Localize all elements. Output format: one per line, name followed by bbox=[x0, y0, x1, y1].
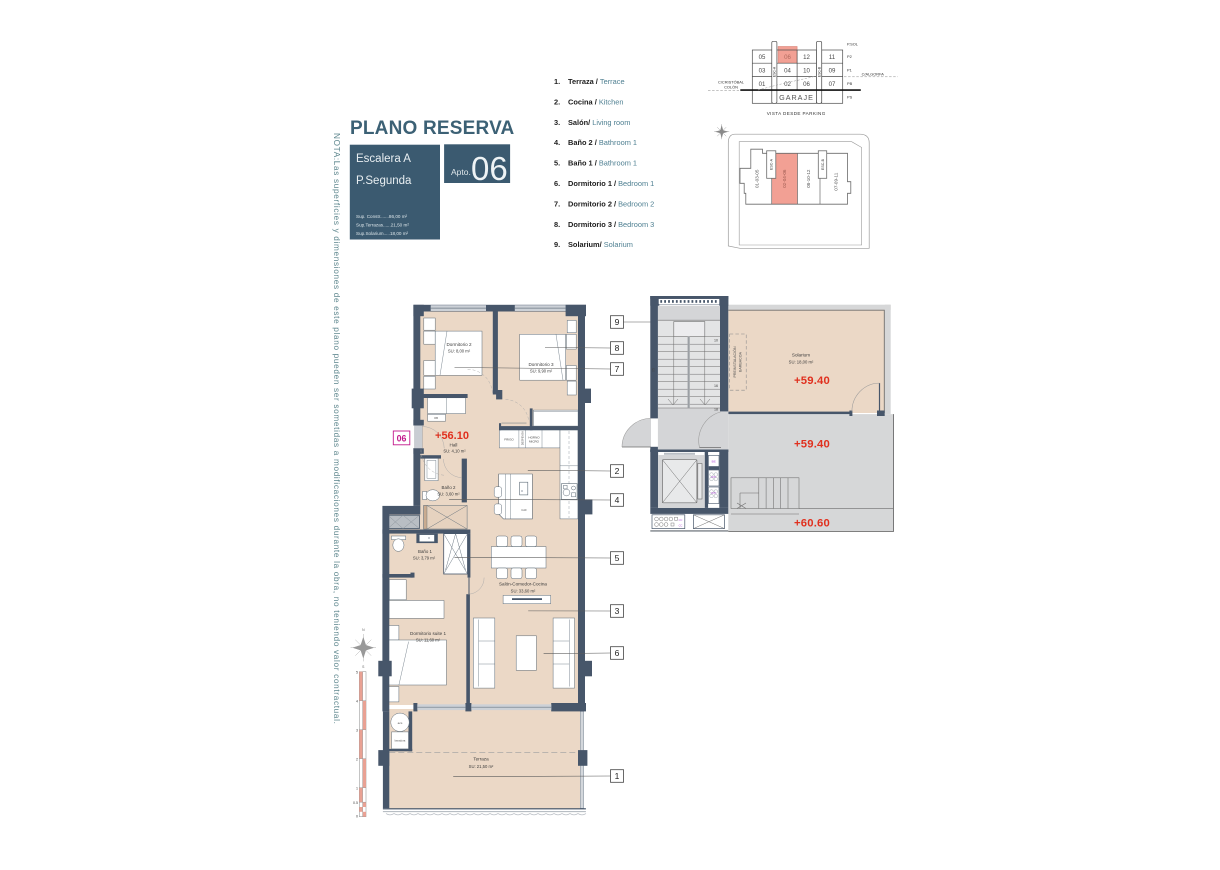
svg-text:02-04-06: 02-04-06 bbox=[782, 169, 787, 188]
svg-text:ESC-B: ESC-B bbox=[817, 66, 821, 77]
svg-text:11: 11 bbox=[829, 54, 836, 61]
svg-text:06: 06 bbox=[471, 150, 508, 187]
svg-text:Terraza: Terraza bbox=[473, 757, 489, 762]
svg-text:1: 1 bbox=[356, 787, 358, 791]
svg-text:CC: CC bbox=[679, 518, 683, 522]
svg-text:5: 5 bbox=[615, 553, 620, 563]
svg-text:01-03-05: 01-03-05 bbox=[755, 169, 760, 188]
svg-text:01: 01 bbox=[759, 81, 766, 88]
svg-text:8: 8 bbox=[615, 343, 620, 353]
svg-text:Escalera A: Escalera A bbox=[356, 153, 411, 165]
svg-text:18: 18 bbox=[714, 408, 718, 412]
svg-text:CC: CC bbox=[679, 524, 683, 528]
svg-text:P.Segunda: P.Segunda bbox=[356, 175, 412, 187]
svg-text:07-09-11: 07-09-11 bbox=[833, 172, 838, 190]
svg-text:12: 12 bbox=[803, 54, 810, 61]
svg-text:Baño 2: Baño 2 bbox=[442, 485, 456, 490]
svg-text:06: 06 bbox=[784, 54, 791, 61]
svg-text:FRIGO: FRIGO bbox=[504, 438, 514, 442]
svg-text:PB: PB bbox=[847, 81, 853, 86]
svg-text:MICRO: MICRO bbox=[529, 440, 540, 444]
svg-text:C/ALGORFA: C/ALGORFA bbox=[862, 71, 885, 76]
svg-text:06: 06 bbox=[803, 81, 810, 88]
svg-text:SU: 18,00 m²: SU: 18,00 m² bbox=[789, 360, 814, 365]
svg-text:Dormitorio 2: Dormitorio 2 bbox=[446, 342, 471, 347]
svg-text:+59.40: +59.40 bbox=[794, 438, 830, 450]
svg-text:10: 10 bbox=[803, 68, 810, 75]
svg-text:8.Dormitorio 3 / Bedroom 3: 8.Dormitorio 3 / Bedroom 3 bbox=[554, 220, 654, 229]
svg-text:16: 16 bbox=[714, 384, 718, 388]
svg-text:2: 2 bbox=[615, 466, 620, 476]
svg-text:09: 09 bbox=[829, 68, 836, 75]
svg-text:RITI: RITI bbox=[711, 491, 716, 495]
svg-text:Hall: Hall bbox=[450, 442, 458, 447]
svg-text:6.Dormitorio 1 / Bedroom 1: 6.Dormitorio 1 / Bedroom 1 bbox=[554, 179, 654, 188]
svg-text:PS: PS bbox=[847, 95, 853, 100]
svg-text:VISTA DESDE PARKING: VISTA DESDE PARKING bbox=[767, 111, 826, 116]
svg-text:P.SOL: P.SOL bbox=[847, 42, 859, 47]
svg-text:GARAJE: GARAJE bbox=[779, 93, 814, 102]
svg-text:4: 4 bbox=[356, 700, 358, 704]
svg-text:Baño 1: Baño 1 bbox=[418, 549, 432, 554]
svg-text:DESPENSA: DESPENSA bbox=[520, 431, 524, 445]
svg-text:+60.60: +60.60 bbox=[794, 517, 830, 529]
svg-text:SU: 9,90 m²: SU: 9,90 m² bbox=[530, 369, 553, 374]
svg-text:BIE: BIE bbox=[712, 460, 716, 464]
svg-text:COLÓN: COLÓN bbox=[724, 84, 738, 89]
svg-text:Sup.Terrazas......21,50 m²: Sup.Terrazas......21,50 m² bbox=[356, 223, 409, 228]
svg-text:OB: OB bbox=[434, 416, 438, 420]
svg-text:SU: 11,60 m²: SU: 11,60 m² bbox=[416, 638, 441, 643]
svg-text:BARBACOA: BARBACOA bbox=[738, 351, 742, 372]
svg-text:05: 05 bbox=[652, 368, 656, 372]
svg-text:PLANO RESERVA: PLANO RESERVA bbox=[350, 118, 515, 139]
svg-text:06: 06 bbox=[397, 433, 407, 443]
svg-text:03: 03 bbox=[759, 68, 766, 75]
svg-text:P2: P2 bbox=[847, 54, 852, 59]
svg-text:ESC-A: ESC-A bbox=[773, 66, 777, 77]
svg-text:04: 04 bbox=[784, 68, 791, 75]
svg-text:CAF: CAF bbox=[521, 508, 527, 512]
svg-text:Dormitorio 3: Dormitorio 3 bbox=[528, 362, 553, 367]
svg-text:7: 7 bbox=[615, 364, 620, 374]
svg-text:Salón-Comedor-Cocina: Salón-Comedor-Cocina bbox=[499, 582, 547, 587]
svg-text:SU: 4,10 m²: SU: 4,10 m² bbox=[443, 448, 466, 453]
svg-text:lavadora: lavadora bbox=[395, 739, 406, 743]
svg-text:0: 0 bbox=[356, 815, 358, 819]
svg-text:08-10-12: 08-10-12 bbox=[806, 169, 811, 188]
svg-text:05: 05 bbox=[759, 54, 766, 61]
svg-text:4: 4 bbox=[615, 495, 620, 505]
svg-text:ESC-A: ESC-A bbox=[770, 158, 774, 170]
svg-text:Dormitorio suite 1: Dormitorio suite 1 bbox=[410, 631, 446, 636]
svg-text:ESC-B: ESC-B bbox=[821, 158, 825, 170]
svg-text:Sup.Solarium.....18,00 m²: Sup.Solarium.....18,00 m² bbox=[356, 231, 409, 236]
svg-text:SU: 3,60 m²: SU: 3,60 m² bbox=[437, 492, 460, 497]
svg-text:SU: 21,50 m²: SU: 21,50 m² bbox=[469, 764, 494, 769]
svg-text:SU: 33,60 m²: SU: 33,60 m² bbox=[511, 589, 536, 594]
svg-text:Apto.: Apto. bbox=[451, 167, 471, 177]
svg-text:Sup. Constr.......86,00 m²: Sup. Constr.......86,00 m² bbox=[356, 214, 408, 219]
svg-text:10: 10 bbox=[714, 339, 718, 343]
svg-text:Solarium: Solarium bbox=[792, 353, 810, 358]
svg-text:+59.40: +59.40 bbox=[794, 375, 830, 387]
svg-text:5: 5 bbox=[356, 671, 358, 675]
svg-text:SU: 8,00 m²: SU: 8,00 m² bbox=[448, 349, 471, 354]
svg-text:acs: acs bbox=[398, 721, 403, 725]
svg-text:P1: P1 bbox=[847, 68, 852, 73]
svg-text:3: 3 bbox=[615, 606, 620, 616]
svg-text:7.Dormitorio 2 / Bedroom 2: 7.Dormitorio 2 / Bedroom 2 bbox=[554, 199, 654, 208]
svg-text:9: 9 bbox=[615, 317, 620, 327]
svg-text:2: 2 bbox=[356, 758, 358, 762]
svg-text:1: 1 bbox=[615, 771, 620, 781]
svg-text:6: 6 bbox=[615, 648, 620, 658]
svg-text:SU: 3,79 m²: SU: 3,79 m² bbox=[413, 556, 436, 561]
svg-text:RITI: RITI bbox=[711, 475, 716, 479]
svg-text:3: 3 bbox=[356, 729, 358, 733]
svg-text:NOTA:Las superficies y dimensi: NOTA:Las superficies y dimensiones de es… bbox=[332, 133, 341, 725]
svg-text:PREINSTALACIÓN: PREINSTALACIÓN bbox=[732, 346, 737, 377]
svg-text:07: 07 bbox=[829, 81, 836, 88]
svg-text:0.5: 0.5 bbox=[353, 801, 358, 805]
